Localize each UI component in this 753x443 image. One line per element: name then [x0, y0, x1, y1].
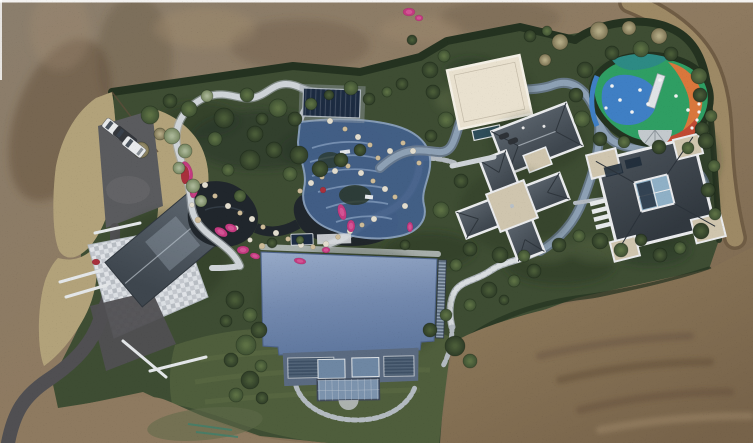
film-grain [0, 0, 753, 443]
aerial-photo-stage [0, 0, 753, 443]
estate-aerial-photo [0, 0, 753, 443]
